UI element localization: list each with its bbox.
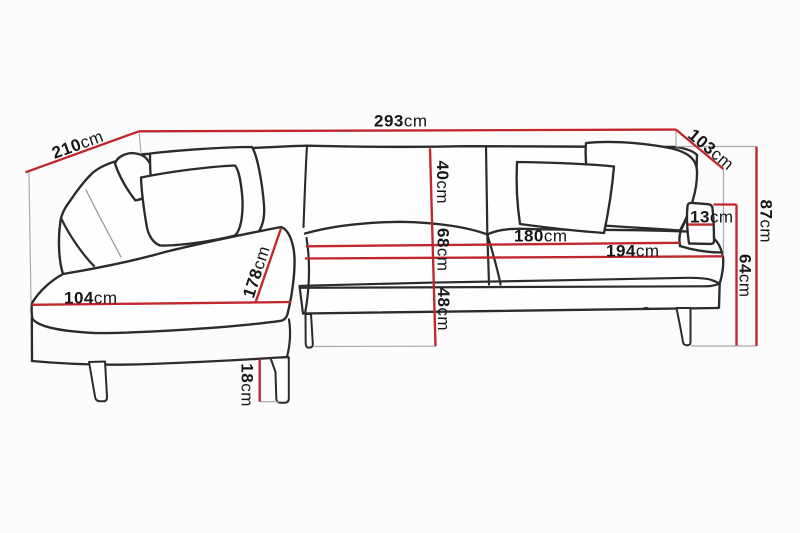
svg-text:13cm: 13cm [690, 208, 734, 227]
svg-text:194cm: 194cm [606, 241, 660, 260]
svg-text:104cm: 104cm [64, 289, 118, 308]
svg-text:293cm: 293cm [374, 111, 428, 130]
svg-text:180cm: 180cm [514, 226, 568, 245]
svg-text:64cm: 64cm [736, 254, 755, 298]
svg-text:18cm: 18cm [238, 363, 257, 407]
svg-text:40cm: 40cm [433, 161, 452, 205]
svg-text:87cm: 87cm [757, 200, 776, 244]
svg-text:48cm: 48cm [434, 288, 453, 332]
svg-text:68cm: 68cm [434, 228, 453, 272]
